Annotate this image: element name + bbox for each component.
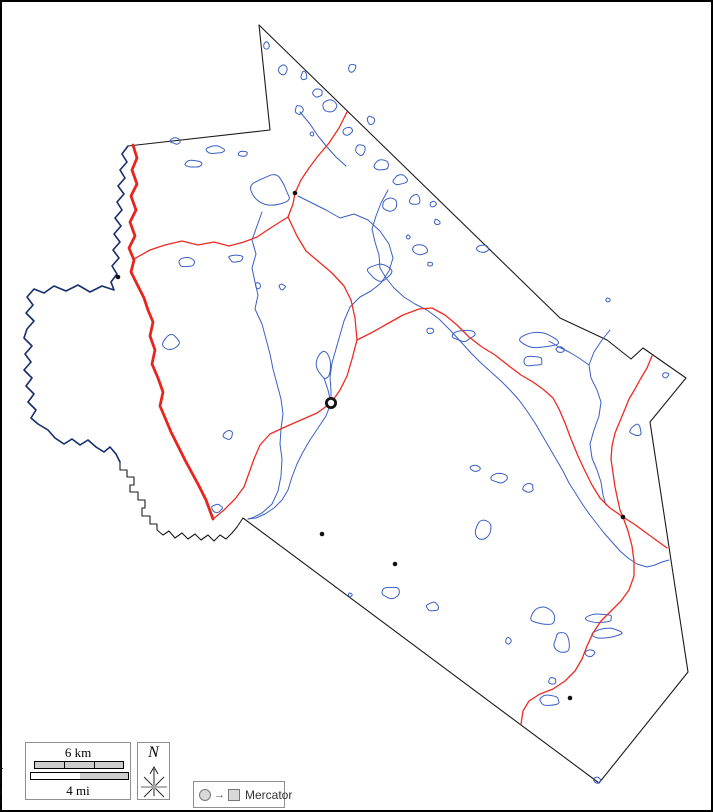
lake	[310, 132, 314, 136]
lake	[434, 219, 440, 224]
lake	[428, 262, 433, 266]
lake	[223, 430, 232, 439]
town-dot	[568, 696, 573, 701]
lake	[585, 650, 595, 657]
lake	[406, 235, 410, 239]
west-boundary-river	[24, 146, 128, 462]
town-dot	[393, 562, 398, 567]
lake	[413, 245, 428, 255]
minor-road	[623, 517, 667, 548]
scale-tick	[64, 762, 65, 768]
town-dot	[320, 532, 325, 537]
lake	[491, 473, 508, 483]
scale-bar: 6 km 4 mi	[25, 742, 131, 800]
lake	[356, 145, 366, 156]
lake	[163, 334, 180, 349]
lake	[349, 593, 353, 597]
lake	[264, 42, 270, 49]
lake	[229, 255, 243, 262]
lake	[238, 151, 247, 156]
lake	[663, 373, 669, 378]
river	[372, 190, 669, 567]
lake	[367, 116, 374, 124]
copyright-text: © d-maps.com	[0, 734, 4, 806]
county-seat-marker	[326, 398, 335, 407]
projection-circle-icon	[199, 789, 211, 801]
scale-km-bar	[34, 761, 124, 769]
lake	[313, 89, 323, 97]
town-dot	[116, 275, 121, 280]
minor-road	[611, 356, 652, 517]
lake	[212, 504, 223, 512]
river	[248, 403, 331, 519]
lake	[520, 332, 559, 347]
lake	[382, 587, 399, 598]
lake	[323, 100, 337, 112]
minor-road	[213, 340, 357, 519]
lake	[523, 483, 534, 492]
lake	[393, 175, 407, 185]
projection-label: Mercator	[245, 788, 292, 802]
lake	[427, 328, 434, 333]
map-page: { "watermark": { "text": "© d-maps.com" …	[0, 0, 713, 812]
scale-km-label: 6 km	[26, 745, 130, 761]
minor-road	[357, 308, 623, 517]
scale-tick	[94, 762, 95, 768]
lake	[206, 146, 225, 154]
scale-mi-fill	[80, 773, 129, 779]
lake	[630, 424, 641, 435]
town-dot	[293, 191, 298, 196]
scale-mi-label: 4 mi	[26, 783, 130, 799]
lake	[606, 298, 610, 302]
projection-box: → Mercator	[193, 781, 285, 808]
lake	[506, 638, 512, 645]
lake	[409, 194, 420, 204]
lake	[343, 127, 352, 135]
lake	[470, 465, 480, 471]
lake	[524, 356, 542, 365]
lake	[295, 106, 303, 115]
north-label: N	[138, 744, 169, 762]
lake	[549, 678, 556, 684]
lake	[179, 257, 195, 266]
minor-road	[288, 217, 357, 340]
north-arrow-icon	[139, 762, 169, 798]
lake	[531, 607, 555, 624]
river	[549, 341, 589, 365]
lake	[426, 602, 438, 611]
lake	[349, 65, 356, 73]
lake	[554, 633, 569, 653]
lake	[301, 71, 307, 79]
town-dot	[621, 515, 626, 520]
lake	[279, 284, 285, 290]
river	[248, 212, 283, 519]
river	[589, 330, 610, 505]
lake	[251, 175, 290, 206]
minor-road	[134, 217, 288, 259]
lake	[475, 520, 491, 539]
major-road	[129, 145, 213, 519]
lake	[592, 628, 622, 638]
projection-arrow-icon: →	[214, 790, 225, 800]
lake	[185, 160, 202, 167]
river	[298, 196, 393, 403]
lake	[374, 160, 388, 170]
river	[300, 112, 346, 166]
lake	[540, 695, 559, 705]
lake	[383, 198, 397, 211]
lake	[278, 65, 287, 75]
lake	[316, 351, 330, 378]
minor-road	[288, 112, 347, 217]
map-svg	[0, 0, 713, 812]
lake	[430, 201, 436, 207]
scale-mi-bar	[30, 772, 129, 780]
county-boundary	[24, 25, 688, 783]
compass-box: N	[137, 742, 170, 800]
projection-square-icon	[228, 789, 240, 801]
lake	[476, 245, 488, 252]
